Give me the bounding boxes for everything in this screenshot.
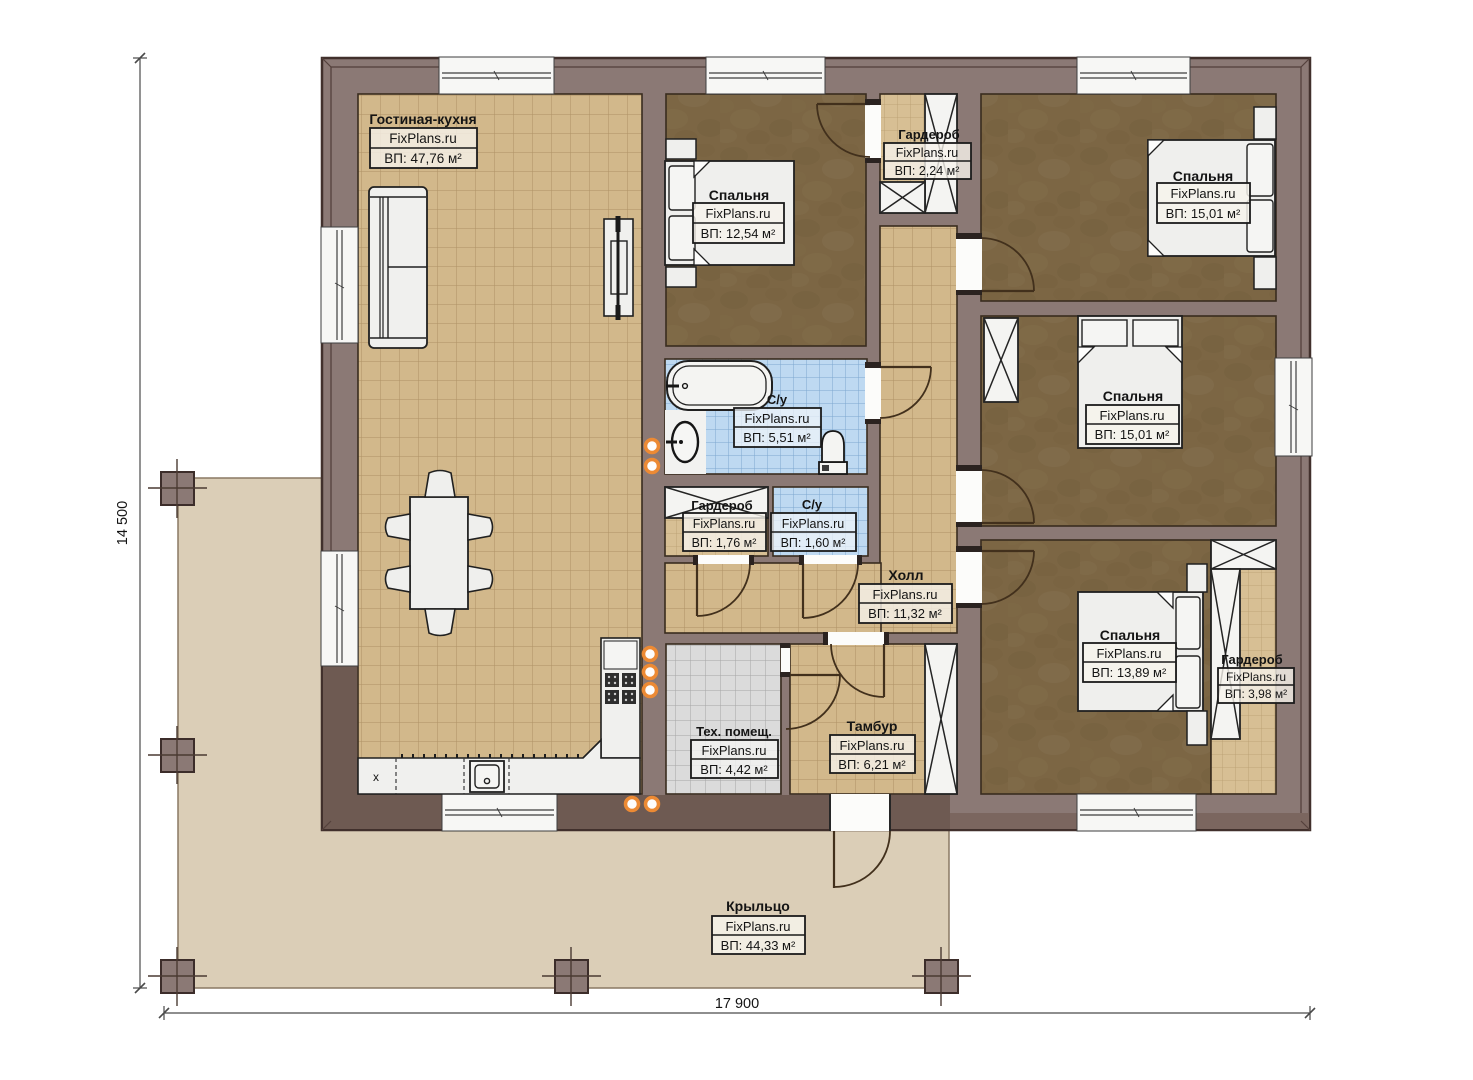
- svg-text:Спальня: Спальня: [709, 187, 769, 203]
- svg-text:ВП: 13,89 м²: ВП: 13,89 м²: [1092, 665, 1167, 680]
- svg-text:FixPlans.ru: FixPlans.ru: [389, 131, 457, 146]
- svg-text:FixPlans.ru: FixPlans.ru: [782, 517, 845, 531]
- svg-text:FixPlans.ru: FixPlans.ru: [744, 411, 809, 426]
- svg-text:Крыльцо: Крыльцо: [726, 898, 790, 914]
- svg-text:Спальня: Спальня: [1100, 627, 1160, 643]
- svg-text:17 900: 17 900: [715, 996, 759, 1012]
- svg-text:FixPlans.ru: FixPlans.ru: [896, 146, 959, 160]
- svg-text:FixPlans.ru: FixPlans.ru: [1170, 186, 1235, 201]
- svg-text:ВП: 6,21 м²: ВП: 6,21 м²: [838, 757, 906, 772]
- svg-text:14 500: 14 500: [115, 501, 131, 545]
- svg-text:FixPlans.ru: FixPlans.ru: [1226, 670, 1286, 684]
- svg-text:x: x: [373, 770, 379, 784]
- svg-text:ВП: 12,54 м²: ВП: 12,54 м²: [701, 226, 776, 241]
- svg-text:ВП: 1,60 м²: ВП: 1,60 м²: [781, 536, 846, 550]
- svg-text:ВП: 3,98 м²: ВП: 3,98 м²: [1225, 687, 1287, 701]
- svg-text:ВП: 2,24 м²: ВП: 2,24 м²: [895, 164, 960, 178]
- svg-text:ВП: 15,01 м²: ВП: 15,01 м²: [1166, 206, 1241, 221]
- svg-text:Тех. помещ.: Тех. помещ.: [696, 724, 772, 739]
- svg-text:FixPlans.ru: FixPlans.ru: [705, 206, 770, 221]
- svg-text:Гостиная-кухня: Гостиная-кухня: [369, 111, 476, 127]
- svg-text:С/у: С/у: [767, 392, 788, 407]
- svg-text:ВП: 15,01 м²: ВП: 15,01 м²: [1095, 427, 1170, 442]
- svg-text:Гардероб: Гардероб: [1221, 652, 1282, 667]
- svg-text:FixPlans.ru: FixPlans.ru: [725, 919, 790, 934]
- svg-text:Гардероб: Гардероб: [898, 127, 959, 142]
- svg-text:Спальня: Спальня: [1103, 388, 1163, 404]
- svg-text:FixPlans.ru: FixPlans.ru: [1096, 646, 1161, 661]
- svg-text:ВП: 4,42 м²: ВП: 4,42 м²: [700, 762, 768, 777]
- svg-text:FixPlans.ru: FixPlans.ru: [839, 738, 904, 753]
- svg-text:ВП: 5,51 м²: ВП: 5,51 м²: [743, 430, 811, 445]
- svg-text:FixPlans.ru: FixPlans.ru: [872, 587, 937, 602]
- svg-text:ВП: 1,76 м²: ВП: 1,76 м²: [692, 536, 757, 550]
- svg-text:ВП: 44,33 м²: ВП: 44,33 м²: [721, 938, 796, 953]
- svg-text:Холл: Холл: [888, 567, 923, 583]
- svg-text:ВП: 11,32 м²: ВП: 11,32 м²: [868, 606, 942, 621]
- svg-text:Тамбур: Тамбур: [847, 718, 898, 734]
- svg-text:С/у: С/у: [802, 497, 823, 512]
- svg-text:FixPlans.ru: FixPlans.ru: [1099, 408, 1164, 423]
- svg-text:Гардероб: Гардероб: [691, 498, 752, 513]
- svg-text:FixPlans.ru: FixPlans.ru: [701, 743, 766, 758]
- svg-text:ВП: 47,76 м²: ВП: 47,76 м²: [384, 151, 462, 166]
- svg-text:Спальня: Спальня: [1173, 168, 1233, 184]
- svg-text:FixPlans.ru: FixPlans.ru: [693, 517, 756, 531]
